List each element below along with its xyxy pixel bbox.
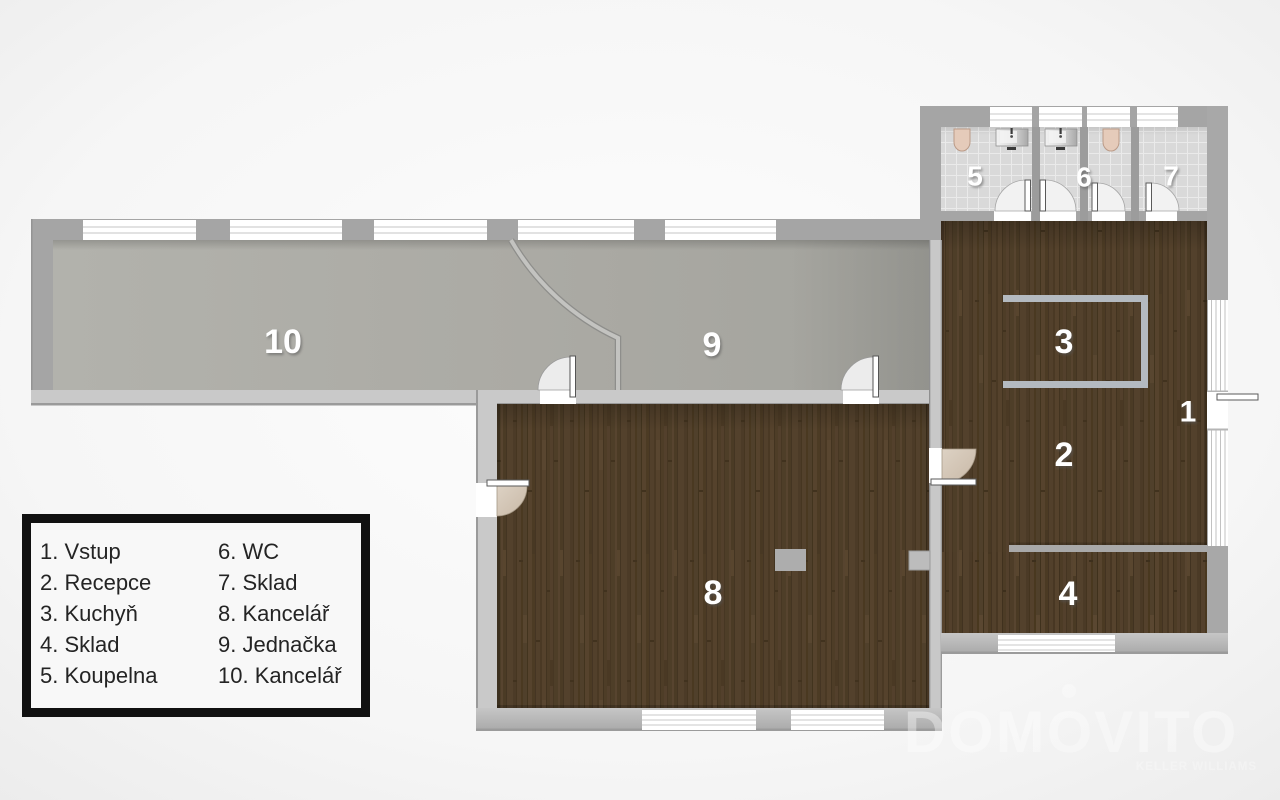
svg-text:6: 6 bbox=[1076, 162, 1092, 193]
svg-text:8: 8 bbox=[704, 574, 723, 612]
svg-text:7: 7 bbox=[1163, 161, 1179, 192]
svg-text:9: 9 bbox=[703, 326, 722, 364]
svg-text:DOMOVITO: DOMOVITO bbox=[904, 700, 1239, 765]
svg-text:8. Kancelář: 8. Kancelář bbox=[218, 601, 330, 626]
svg-text:2. Recepce: 2. Recepce bbox=[40, 570, 151, 595]
svg-text:5. Koupelna: 5. Koupelna bbox=[40, 663, 158, 688]
svg-text:2: 2 bbox=[1055, 436, 1074, 474]
svg-text:KELLER WILLIAMS: KELLER WILLIAMS bbox=[1136, 761, 1257, 773]
svg-text:7. Sklad: 7. Sklad bbox=[218, 570, 298, 595]
svg-text:1: 1 bbox=[1180, 396, 1197, 429]
svg-text:3: 3 bbox=[1055, 323, 1074, 361]
svg-text:1. Vstup: 1. Vstup bbox=[40, 539, 121, 564]
svg-text:4. Sklad: 4. Sklad bbox=[40, 632, 120, 657]
svg-text:5: 5 bbox=[967, 161, 983, 192]
svg-text:10: 10 bbox=[264, 323, 302, 361]
svg-text:4: 4 bbox=[1059, 575, 1078, 613]
svg-text:9. Jednačka: 9. Jednačka bbox=[218, 632, 337, 657]
svg-text:3. Kuchyň: 3. Kuchyň bbox=[40, 601, 138, 626]
svg-text:10. Kancelář: 10. Kancelář bbox=[218, 663, 342, 688]
svg-text:6. WC: 6. WC bbox=[218, 539, 279, 564]
